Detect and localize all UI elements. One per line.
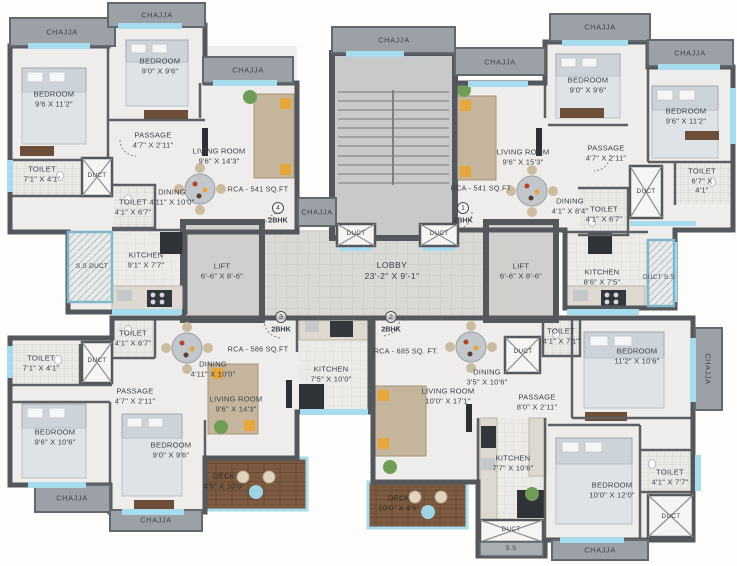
unit3-type-label: 2BHK — [271, 325, 291, 334]
label-u1-passage: PASSAGE 4'7" X 2'11" — [586, 143, 627, 162]
label-u4-ss-duct: S.S DUCT — [76, 263, 108, 271]
chajja-label-9: CHAJJA — [56, 493, 88, 502]
chajja-label-7: CHAJJA — [674, 48, 706, 57]
label-u4-kitchen: KITCHEN 9'1" X 7'7" — [128, 250, 165, 269]
label-u3-living: LIVING ROOM 9'6" X 14'3" — [210, 394, 263, 413]
label-u1-duct: DUCT — [637, 188, 656, 196]
label-u2-bedroom1: BEDROOM 11'2" X 10'6" — [615, 346, 660, 365]
chajja-label-12: CHAJJA — [703, 353, 712, 385]
label-u2-duct1: DUCT — [514, 348, 533, 356]
label-u3-dining: DINING 4'11" X 10'0" — [191, 359, 236, 378]
chajja-label-2: CHAJJA — [141, 10, 173, 19]
label-u3-bedroom1: BEDROOM 9'6" X 10'6" — [34, 427, 75, 446]
chajja-label-6: CHAJJA — [584, 22, 616, 31]
label-u4-toilet1: TOILET 7'1" X 4'1" — [24, 164, 61, 183]
label-u2-kitchen: KITCHEN 7'7" X 10'6" — [492, 453, 533, 472]
label-lobby: LOBBY 23'-2" X 9'-1" — [364, 260, 419, 282]
unit3-number-badge: 3 — [275, 311, 287, 323]
label-u4-dining: DINING 4'11" X 10'0" — [150, 187, 195, 206]
chajja-label-8: CHAJJA — [301, 207, 333, 216]
unit1-number-badge: 1 — [457, 202, 469, 214]
label-u1-bedroom1: BEDROOM 9'0" X 9'6" — [568, 75, 609, 94]
label-u3-bedroom2: BEDROOM 9'0" X 9'6" — [151, 440, 192, 459]
label-duct-lobby-left: DUCT — [347, 230, 366, 238]
label-u1-living: LIVING ROOM 9'6" X 15'3" — [497, 147, 550, 166]
chajja-label-4: CHAJJA — [378, 35, 410, 44]
label-u1-toilet2: TOILET 4'1" X 6'7" — [586, 204, 623, 223]
label-u3-kitchen: KITCHEN 7'5" X 10'0" — [310, 364, 351, 383]
unit4-type-label: 2BHK — [268, 216, 288, 225]
unit2-number-badge: 2 — [385, 311, 397, 323]
label-u4-toilet2: TOILET 4'1" X 6'7" — [115, 197, 152, 216]
label-u3-passage: PASSAGE 4'7" X 2'11" — [115, 386, 156, 405]
chajja-label-10: CHAJJA — [140, 515, 172, 524]
floor-plan: CHAJJA CHAJJA CHAJJA CHAJJA CHAJJA CHAJJ… — [0, 0, 737, 566]
label-u1-rca: RCA - 541 SQ.FT — [451, 183, 512, 192]
label-u4-bedroom2: BEDROOM 9'0" X 9'6" — [140, 56, 181, 75]
label-u2-rca: RCA - 685 SQ. FT. — [374, 346, 439, 355]
label-lift-left: LIFT 6'-6" X 8'-6" — [201, 261, 243, 280]
chajja-label-5: CHAJJA — [484, 57, 516, 66]
label-u2-ss: S.S — [505, 545, 516, 553]
label-u3-rca: RCA - 586 SQ.FT — [228, 344, 289, 353]
label-u4-bedroom1: BEDROOM 9'6 X 11'2" — [34, 89, 75, 108]
label-u1-kitchen: KITCHEN 8'6" X 7'5" — [584, 267, 621, 286]
label-u3-toilet1: TOILET 7'1" X 4'1" — [23, 353, 60, 372]
labels-layer: CHAJJA CHAJJA CHAJJA CHAJJA CHAJJA CHAJJ… — [0, 0, 737, 566]
label-u4-duct: DUCT — [88, 172, 107, 180]
unit2-type-label: 2BHK — [381, 325, 401, 334]
chajja-label-1: CHAJJA — [46, 27, 78, 36]
label-u3-toilet2: TOILET 4'1" X 6'7" — [115, 328, 152, 347]
label-u1-bedroom2: BEDROOM 9'6" X 11'2" — [666, 106, 707, 125]
chajja-label-3: CHAJJA — [232, 65, 264, 74]
label-u2-deck: DECK 10'0" X 4'5" — [378, 493, 419, 512]
label-duct-lobby-right: DUCT — [430, 230, 449, 238]
label-u2-toilet1: TOILET 4'1" X 7'1" — [543, 326, 580, 345]
unit1-type-label: 2BHK — [453, 216, 473, 225]
label-u2-bedroom2: BEDROOM 10'0" X 12'0" — [589, 480, 635, 499]
label-u2-duct3: DUCT — [502, 526, 521, 534]
label-u2-passage: PASSAGE 8'0" X 2'11" — [517, 392, 558, 411]
label-u1-dining: DINING 4'1" X 8'4" — [552, 196, 589, 215]
label-u4-rca: RCA - 541 SQ.FT — [228, 184, 289, 193]
label-u2-toilet2: TOILET 4'1" X 7'7" — [652, 467, 689, 486]
label-u4-living: LIVING ROOM 9'6" X 14'3" — [193, 146, 246, 165]
label-u1-toilet1: TOILET 6'7" X 4'1" — [685, 166, 720, 195]
label-u3-deck: DECK 4'5" X 10'0" — [203, 471, 244, 490]
unit4-number-badge: 4 — [272, 202, 284, 214]
label-u2-duct2: DUCT — [662, 513, 681, 521]
label-u1-duct-ss: DUCT S.S — [643, 274, 675, 282]
label-u2-living: LIVING ROOM 10'0" X 17'1" — [422, 386, 475, 405]
chajja-label-11: CHAJJA — [584, 545, 616, 554]
label-u3-duct: DUCT — [88, 357, 107, 365]
label-u2-dining: DINING 3'5" X 10'6" — [466, 367, 507, 386]
label-lift-right: LIFT 6'-6" X 8'-6" — [500, 261, 542, 280]
label-u4-passage: PASSAGE 4'7" X 2'11" — [133, 130, 174, 149]
